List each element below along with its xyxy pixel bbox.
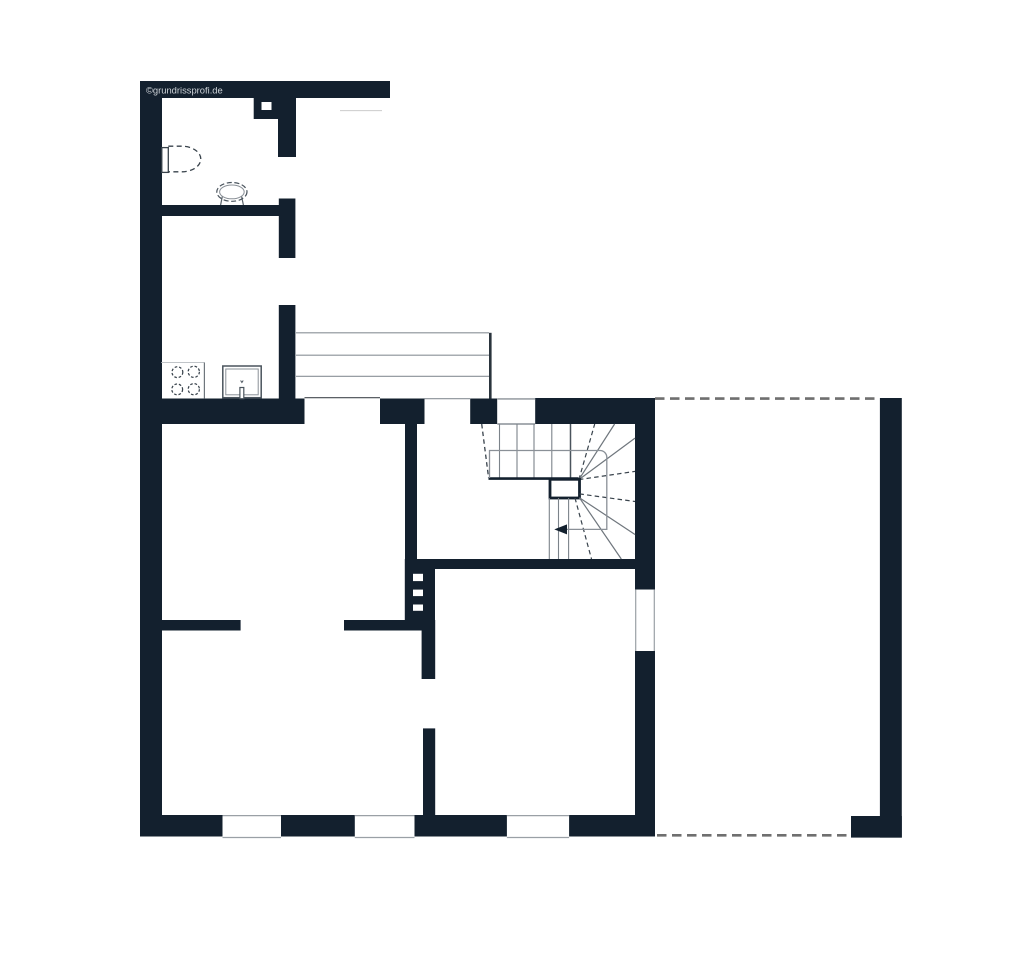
svg-text:©grundrissprofi.de: ©grundrissprofi.de (146, 84, 223, 95)
